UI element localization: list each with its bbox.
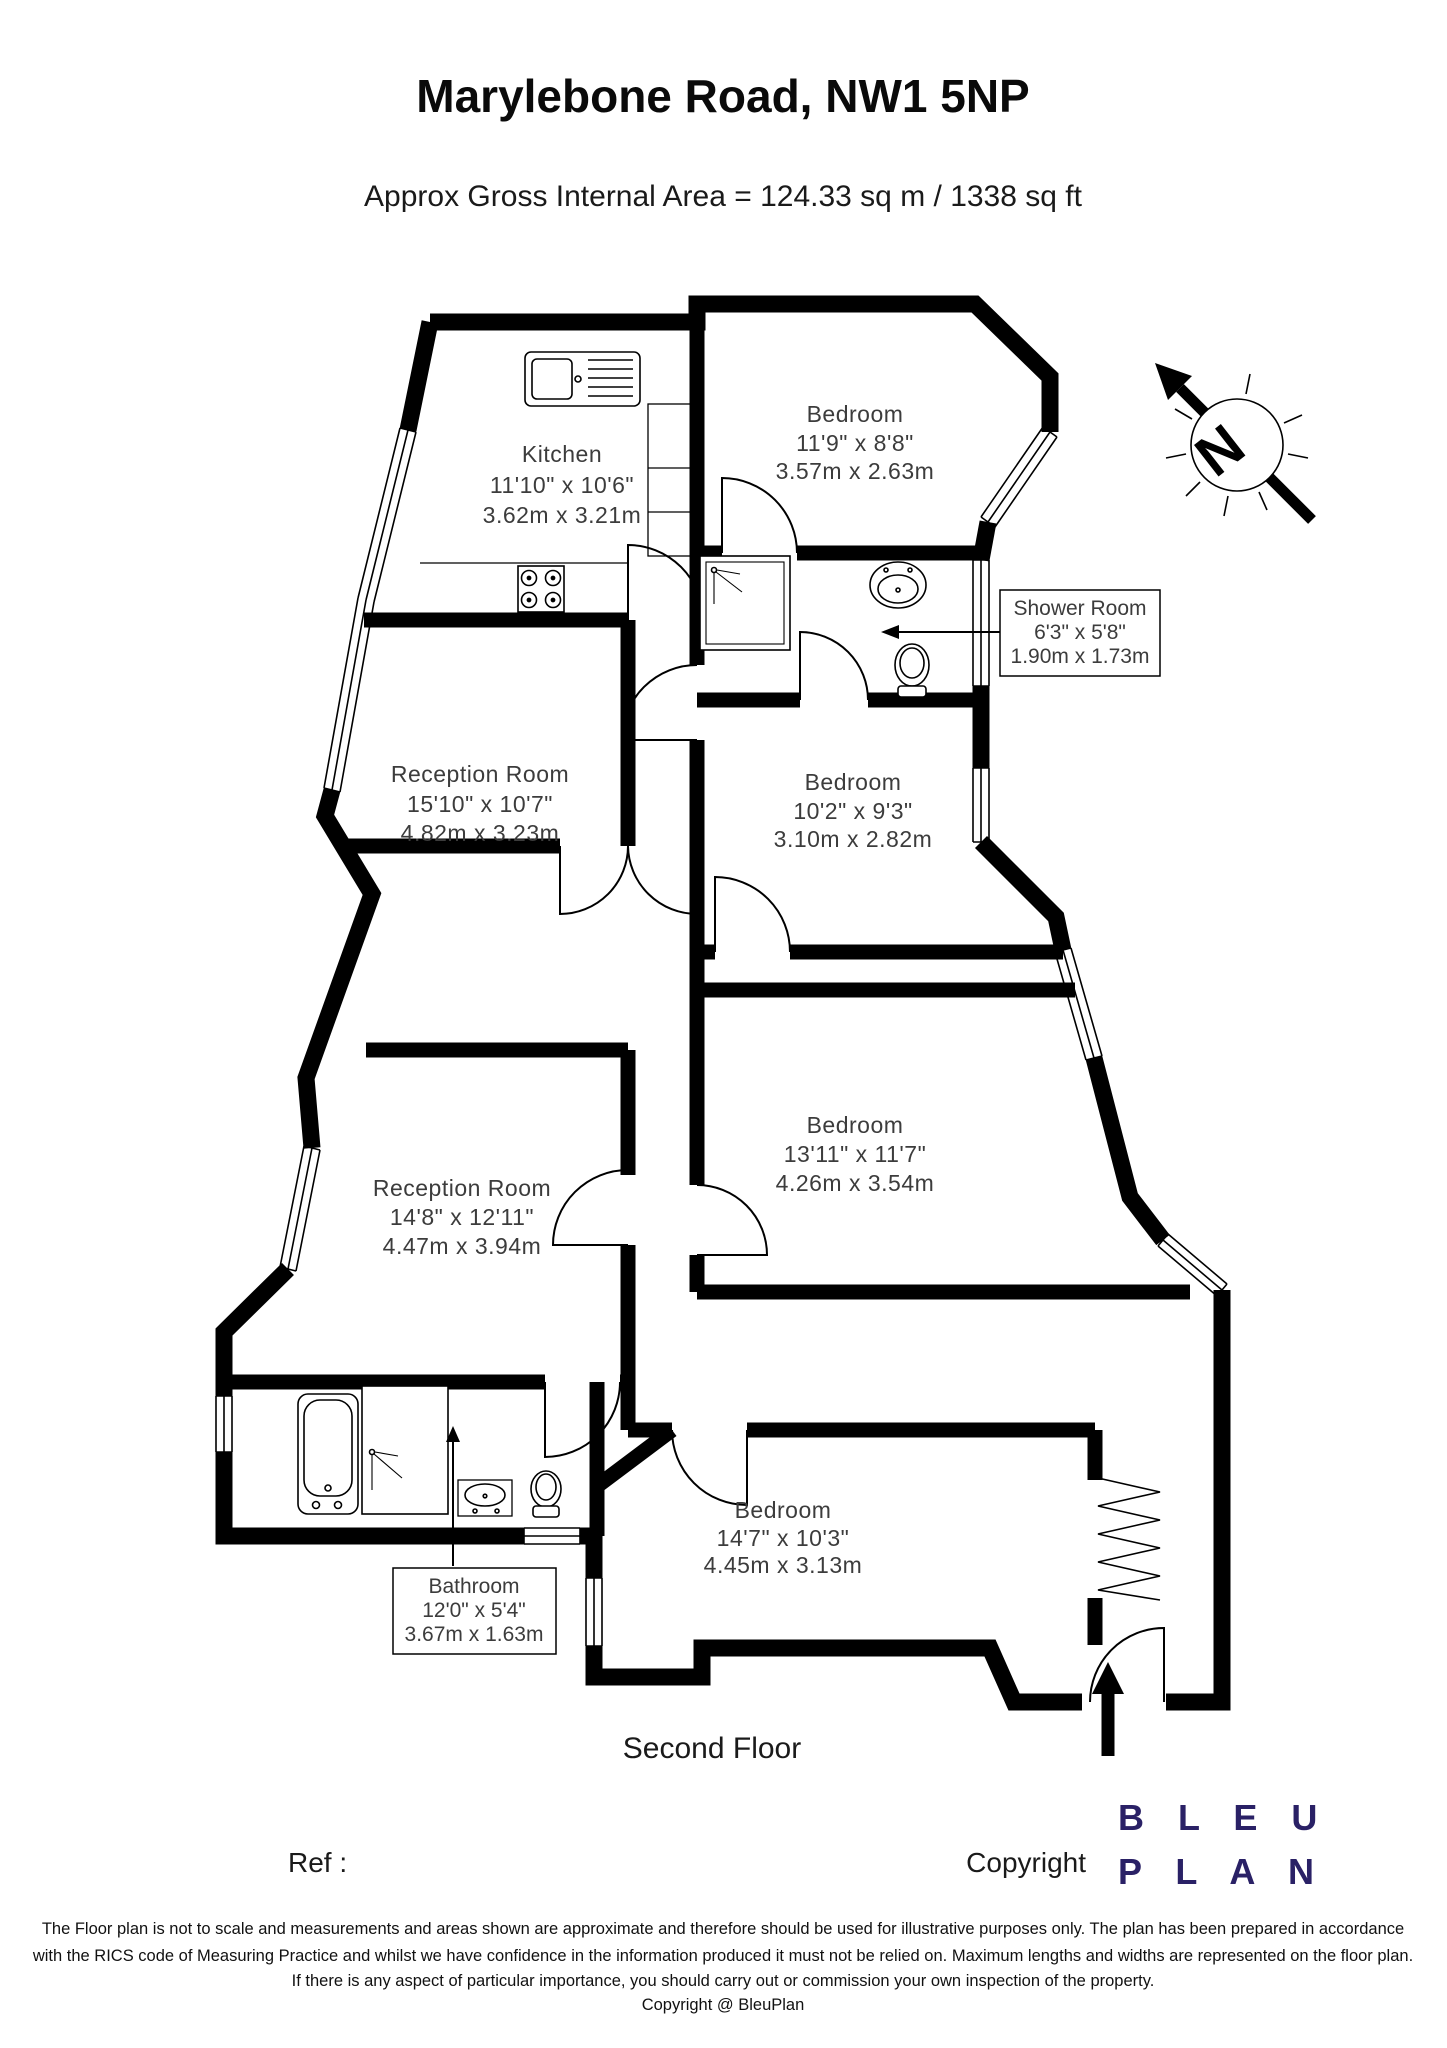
room-label-reception2: Reception Room 14'8" x 12'11" 4.47m x 3.… <box>373 1175 551 1259</box>
window-bed-top-right <box>981 427 1057 527</box>
svg-text:with the RICS code of Measurin: with the RICS code of Measuring Practice… <box>32 1947 1413 1965</box>
bathroom-toilet-icon <box>531 1471 561 1517</box>
svg-text:Reception Room: Reception Room <box>391 761 569 787</box>
callout-arrow-icon <box>881 625 899 639</box>
svg-text:1.90m x 1.73m: 1.90m x 1.73m <box>1011 645 1150 668</box>
hob-icon <box>518 566 564 612</box>
svg-text:14'8" x 12'11": 14'8" x 12'11" <box>390 1204 534 1230</box>
window-reception2-left <box>280 1146 320 1271</box>
window-bed-bottom-left <box>586 1578 602 1646</box>
svg-text:3.57m x 2.63m: 3.57m x 2.63m <box>776 458 935 484</box>
door-reception2 <box>553 1170 628 1245</box>
svg-text:11'9" x 8'8": 11'9" x 8'8" <box>796 430 914 456</box>
ref-label: Ref : <box>288 1847 347 1878</box>
door-reception1-right-leaf <box>628 846 697 914</box>
svg-text:12'0" x 5'4": 12'0" x 5'4" <box>422 1599 526 1622</box>
svg-text:Shower Room: Shower Room <box>1013 597 1146 620</box>
svg-text:14'7" x 10'3": 14'7" x 10'3" <box>717 1525 850 1551</box>
svg-text:13'11" x 11'7": 13'11" x 11'7" <box>784 1141 927 1167</box>
door-bedroom-large <box>697 1185 767 1255</box>
door-bedroom-top <box>722 478 797 553</box>
compass-north-icon: N <box>1155 363 1312 520</box>
window-bathroom-bottom <box>524 1528 580 1544</box>
copyright-label: Copyright <box>966 1847 1086 1878</box>
floorplan-page: Marylebone Road, NW1 5NP Approx Gross In… <box>0 0 1447 2048</box>
room-label-kitchen: Kitchen 11'10" x 10'6" 3.62m x 3.21m <box>483 441 642 528</box>
svg-text:11'10" x 10'6": 11'10" x 10'6" <box>490 472 634 498</box>
shower-toilet-icon <box>895 644 929 697</box>
svg-text:6'3" x 5'8": 6'3" x 5'8" <box>1034 621 1126 644</box>
floor-label: Second Floor <box>623 1732 801 1765</box>
svg-text:Bedroom: Bedroom <box>805 769 902 795</box>
bathroom-shower-tray-icon <box>362 1386 448 1514</box>
disclaimer: The Floor plan is not to scale and measu… <box>32 1920 1413 2014</box>
room-label-bedroom-bottom: Bedroom 14'7" x 10'3" 4.45m x 3.13m <box>704 1497 863 1578</box>
logo-line-1: B L E U <box>1118 1797 1329 1838</box>
svg-text:10'2" x 9'3": 10'2" x 9'3" <box>793 798 912 824</box>
room-label-bedroom-top: Bedroom 11'9" x 8'8" 3.57m x 2.63m <box>776 401 935 484</box>
shower-basin-icon <box>870 562 926 608</box>
shower-room-fixtures <box>700 556 929 697</box>
door-shower-room <box>800 632 868 700</box>
svg-text:Bedroom: Bedroom <box>735 1497 832 1523</box>
entrance-arrow-icon <box>1092 1662 1124 1756</box>
window-shower-right <box>973 560 989 686</box>
logo-line-2: P L A N <box>1118 1851 1326 1892</box>
svg-text:Reception Room: Reception Room <box>373 1175 551 1201</box>
svg-text:Kitchen: Kitchen <box>522 441 602 467</box>
svg-text:15'10" x 10'7": 15'10" x 10'7" <box>407 791 553 817</box>
svg-text:3.10m x 2.82m: 3.10m x 2.82m <box>774 826 933 852</box>
bathroom-basin-icon <box>458 1480 512 1516</box>
window-reception1-left-upper <box>358 428 416 602</box>
svg-text:4.26m x 3.54m: 4.26m x 3.54m <box>776 1170 935 1196</box>
door-bedroom-bottom <box>672 1430 747 1505</box>
svg-text:3.67m x 1.63m: 3.67m x 1.63m <box>405 1623 544 1646</box>
room-label-bedroom-middle: Bedroom 10'2" x 9'3" 3.10m x 2.82m <box>774 769 933 852</box>
room-label-bedroom-large: Bedroom 13'11" x 11'7" 4.26m x 3.54m <box>776 1112 935 1196</box>
bleuplan-logo: B L E U P L A N <box>1118 1797 1329 1892</box>
shower-tray-icon <box>700 556 790 650</box>
svg-text:If there is any aspect of part: If there is any aspect of particular imp… <box>292 1972 1155 1990</box>
door-bathroom <box>545 1382 620 1457</box>
svg-text:Bathroom: Bathroom <box>428 1575 519 1598</box>
bath-icon <box>298 1394 358 1514</box>
svg-text:The Floor plan is not to scale: The Floor plan is not to scale and measu… <box>42 1920 1404 1938</box>
svg-text:Bedroom: Bedroom <box>807 401 904 427</box>
stairs-zigzag-icon <box>1098 1478 1160 1600</box>
kitchen-sink-icon <box>525 352 640 406</box>
floorplan-drawing: Marylebone Road, NW1 5NP Approx Gross In… <box>0 0 1447 2048</box>
door-bedroom-middle-inner <box>715 877 790 952</box>
svg-text:4.82m x 3.23m: 4.82m x 3.23m <box>401 820 560 846</box>
window-bed-large-right <box>1055 948 1102 1060</box>
svg-text:4.47m x 3.94m: 4.47m x 3.94m <box>383 1233 542 1259</box>
door-reception1-left-leaf <box>560 846 628 914</box>
svg-text:Bedroom: Bedroom <box>807 1112 904 1138</box>
room-label-reception1: Reception Room 15'10" x 10'7" 4.82m x 3.… <box>391 761 569 846</box>
svg-text:Copyright @ BleuPlan: Copyright @ BleuPlan <box>642 1996 805 2014</box>
svg-text:3.62m x 3.21m: 3.62m x 3.21m <box>483 502 642 528</box>
window-bed-middle-right <box>973 768 989 842</box>
page-subtitle: Approx Gross Internal Area = 124.33 sq m… <box>364 180 1083 213</box>
page-title: Marylebone Road, NW1 5NP <box>416 70 1029 122</box>
bathroom-fixtures <box>298 1386 561 1517</box>
window-bathroom-left <box>216 1396 232 1452</box>
svg-text:4.45m x 3.13m: 4.45m x 3.13m <box>704 1552 863 1578</box>
